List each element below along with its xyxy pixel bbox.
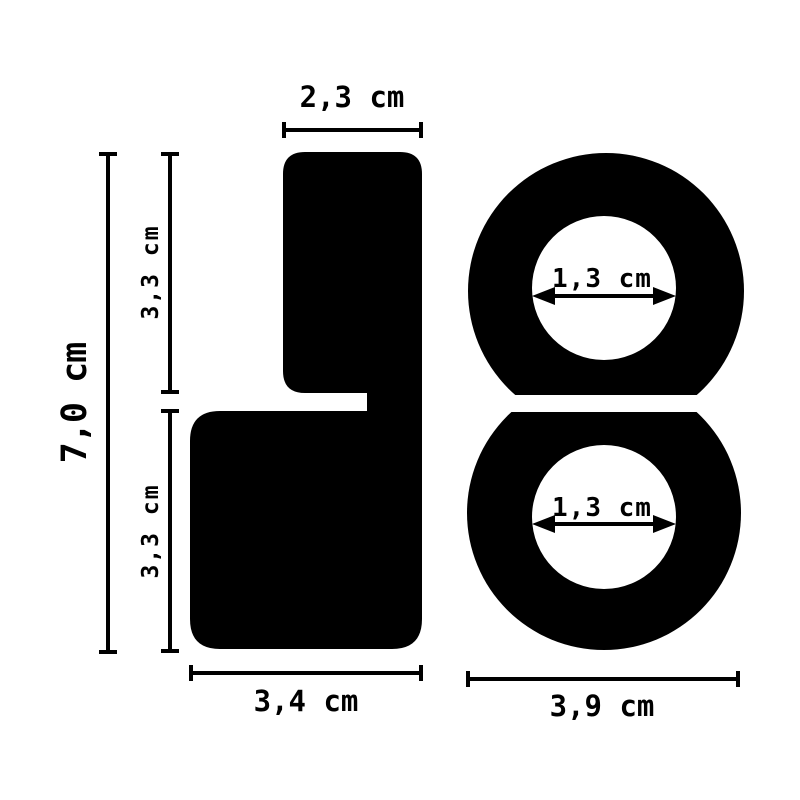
dimension-diagram-page: 2,3 cm 7,0 cm 3,3 cm 3,3 cm 3,4 cm 3,9 c… [0, 0, 800, 800]
upper-height-label: 3,3 cm [138, 224, 164, 319]
total-height-label: 7,0 cm [55, 343, 95, 463]
top-width-label: 2,3 cm [300, 80, 405, 114]
dimension-top-width [284, 122, 421, 138]
side-view-silhouette [190, 152, 422, 649]
bottom-width-front-label: 3,9 cm [550, 689, 655, 723]
front-view-rings [467, 153, 744, 650]
dimension-bottom-width-side [191, 665, 421, 681]
side-view-lower-segment [190, 411, 422, 649]
top-ring-inner-diameter-label: 1,3 cm [552, 264, 652, 294]
dimension-total-height [99, 154, 117, 652]
dimension-diagram: 2,3 cm 7,0 cm 3,3 cm 3,3 cm 3,4 cm 3,9 c… [0, 0, 800, 800]
dimension-bottom-width-front [468, 671, 738, 687]
side-view-upper-segment [283, 152, 422, 414]
bottom-ring-inner-diameter-label: 1,3 cm [552, 493, 652, 523]
bottom-width-side-label: 3,4 cm [254, 684, 359, 718]
lower-height-label: 3,3 cm [138, 483, 164, 578]
